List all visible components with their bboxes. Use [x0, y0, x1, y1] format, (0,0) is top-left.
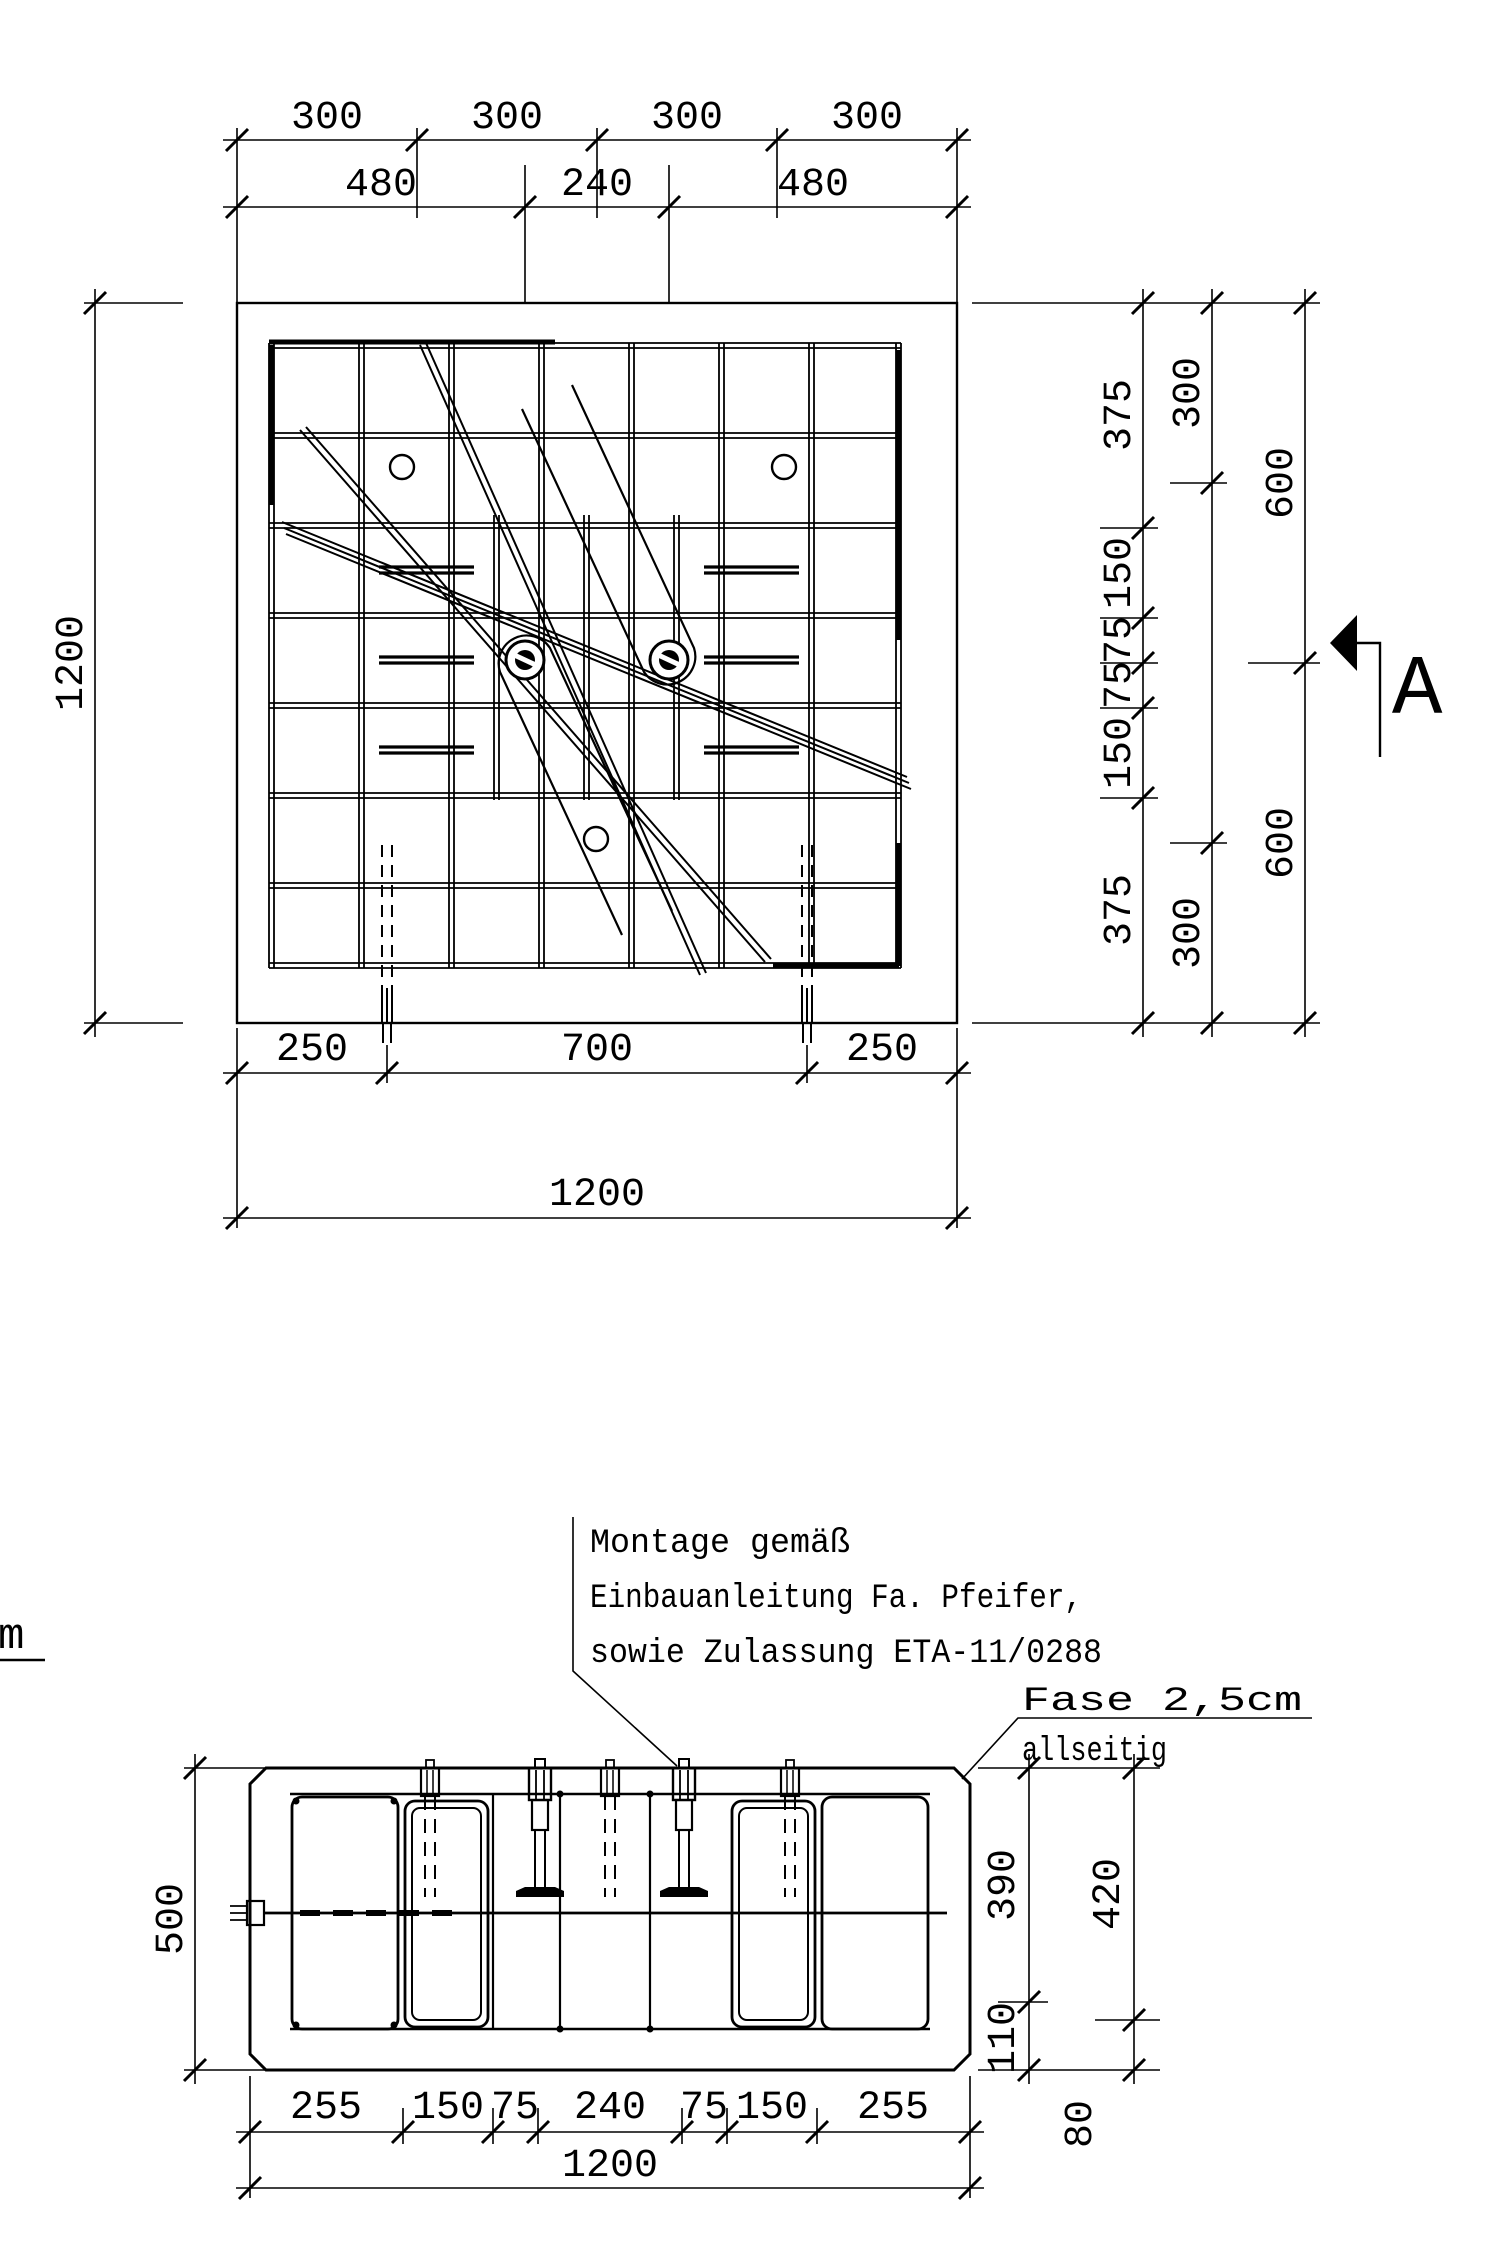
section-stirrup-legs [493, 1794, 650, 2029]
section-anchor-right [660, 1759, 708, 1897]
plan-edge-socket-right [802, 845, 812, 1043]
montage-note-line2: Einbauanleitung Fa. Pfeifer, [590, 1580, 1082, 1618]
dim-label: 500 [150, 1883, 195, 1955]
plan-view [237, 303, 957, 1043]
dim-label: 75 [1098, 661, 1143, 709]
section-sleeve-2 [601, 1760, 619, 1897]
dim-label: 1200 [549, 1173, 645, 1218]
dim-label: 150 [1098, 537, 1143, 609]
section-marker: A [1330, 615, 1443, 757]
dim-label: 300 [291, 96, 363, 141]
dim-label: 375 [1098, 874, 1143, 946]
dim-label: 420 [1087, 1858, 1132, 1930]
dim-label: 480 [777, 163, 849, 208]
dim-label: 600 [1260, 447, 1305, 519]
dim-label: 150 [1098, 717, 1143, 789]
plan-spacer-circle-3 [584, 827, 608, 851]
anchor-foot-plate [660, 1887, 708, 1897]
dim-label: 250 [276, 1028, 348, 1073]
plan-spacer-circle-1 [390, 455, 414, 479]
dim-label: 240 [561, 163, 633, 208]
plan-anchor-socket-left [506, 641, 544, 679]
dim-label: 75 [491, 2086, 539, 2131]
section-sleeve-1 [421, 1760, 439, 1897]
dim-label: 110 [982, 2002, 1027, 2074]
plan-spacer-circle-2 [772, 455, 796, 479]
section-view [230, 1759, 970, 2070]
section-anchor-left [516, 1759, 564, 1897]
section-left-connector [230, 1901, 264, 1925]
dim-label: 600 [1260, 807, 1305, 879]
dim-label: 75 [680, 2086, 728, 2131]
section-sleeve-3 [781, 1760, 799, 1897]
dim-label: 300 [1167, 357, 1212, 429]
dim-label: 390 [982, 1849, 1027, 1921]
montage-note-line1: Montage gemäß [590, 1525, 850, 1563]
plan-edge-socket-left [382, 845, 392, 1043]
dim-label: 700 [561, 1028, 633, 1073]
dim-label: 150 [412, 2086, 484, 2131]
dim-label: 1200 [50, 615, 95, 711]
plan-anchor-socket-right [650, 641, 688, 679]
section-extension-lines [184, 1768, 1160, 2198]
dim-label: 255 [290, 2086, 362, 2131]
dim-label: 300 [831, 96, 903, 141]
dim-label: 250 [846, 1028, 918, 1073]
dim-label: 300 [1167, 897, 1212, 969]
fase-note-line2: allseitig [1022, 1733, 1167, 1771]
section-outline [250, 1768, 970, 2070]
dim-label: 480 [345, 163, 417, 208]
fase-note-line1: Fase 2,5cm [1022, 1683, 1302, 1721]
dim-label: 80 [1059, 2100, 1104, 2148]
section-marker-label: A [1392, 644, 1443, 739]
dim-label: 375 [1098, 379, 1143, 451]
annotations: Montage gemäß Einbauanleitung Fa. Pfeife… [0, 1517, 1312, 1779]
dim-label: 300 [471, 96, 543, 141]
plan-pad-outline [237, 303, 957, 1023]
left-cutoff-text: m [0, 1612, 24, 1662]
dim-label: 240 [574, 2086, 646, 2131]
technical-drawing-page: 300 300 300 300 480 240 480 1200 250 700… [0, 0, 1489, 2263]
dim-label: 75 [1098, 616, 1143, 664]
dim-label: 300 [651, 96, 723, 141]
section-arrow-icon [1330, 615, 1357, 671]
anchor-foot-plate [516, 1887, 564, 1897]
dim-label: 150 [736, 2086, 808, 2131]
montage-note-line3: sowie Zulassung ETA-11/0288 [590, 1635, 1102, 1673]
section-dimensions: 500 390 110 420 80 255 150 75 240 75 150… [150, 1754, 1160, 2199]
dim-label: 255 [857, 2086, 929, 2131]
dim-label: 1200 [562, 2144, 658, 2189]
